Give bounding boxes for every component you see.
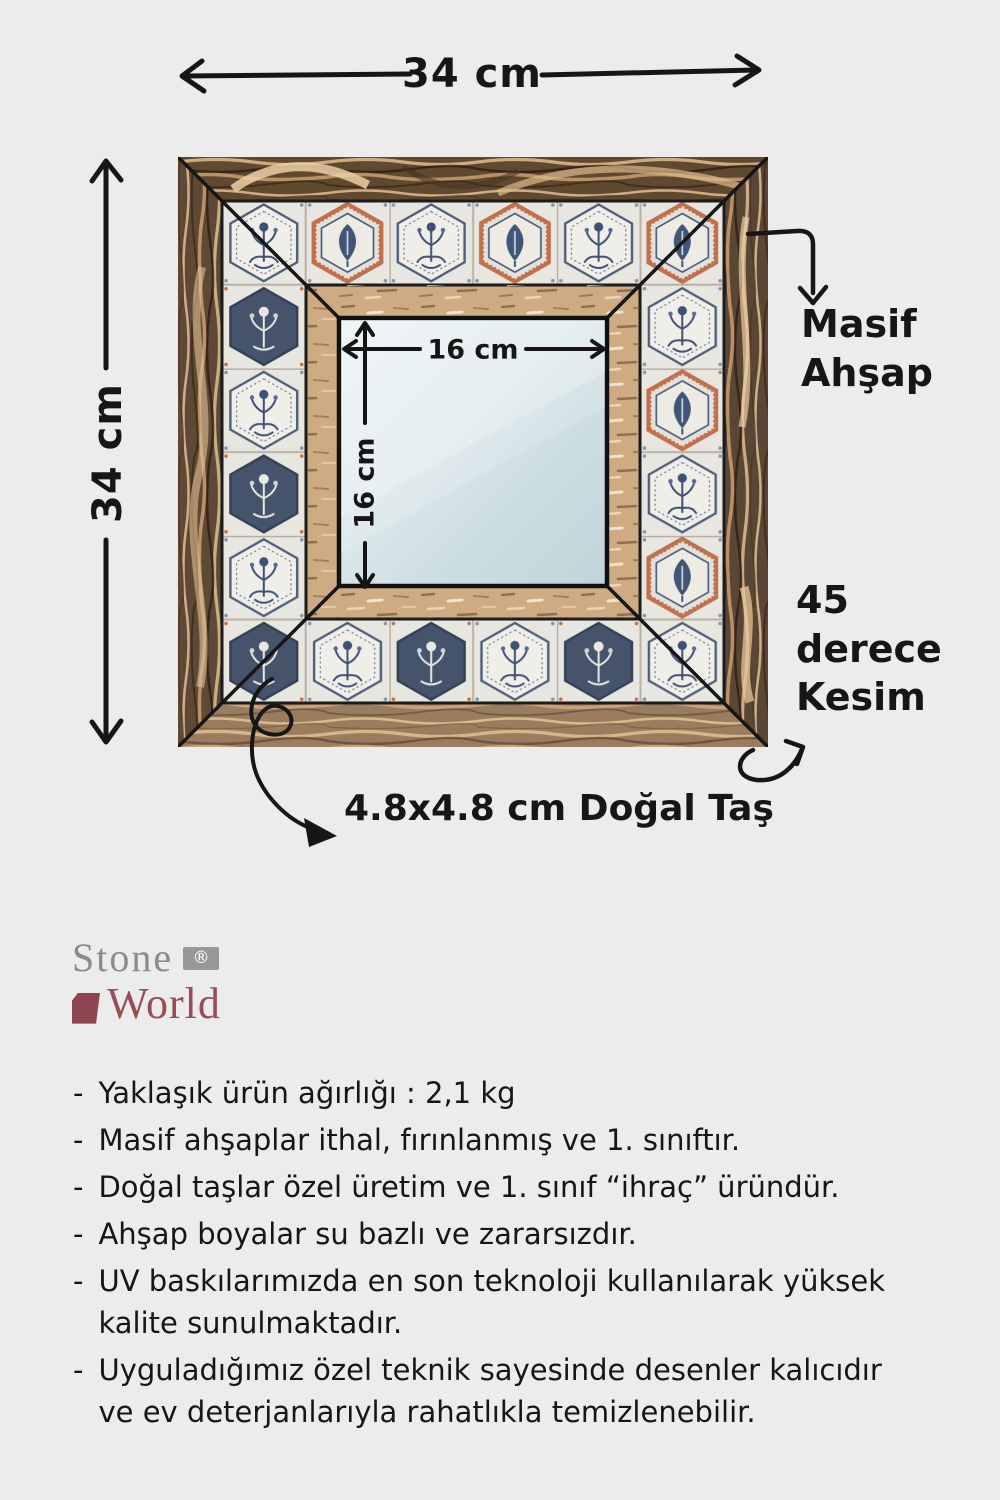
bullet-dash: - [73,1166,83,1208]
registered-trademark-icon: ® [183,947,219,970]
miter-callout-arrow [740,741,803,780]
bullet-dash: - [73,1213,83,1255]
stone-callout-arrow [251,679,337,847]
logo-word-stone: Stone [72,938,173,978]
bullet-dash: - [73,1349,83,1391]
feature-item: - Ahşap boyalar su bazlı ve zararsızdır. [73,1213,1000,1255]
product-infographic: 16 cm 16 cm [0,0,1000,1500]
wood-callout-arrow [748,231,826,303]
brand-logo: Stone ® World [72,938,221,1024]
logo-mark-icon [72,993,100,1024]
annotation-arrows [0,0,1000,900]
feature-item: - Doğal taşlar özel üretim ve 1. sınıf “… [73,1166,1000,1208]
feature-item: - Uyguladığımız özel teknik sayesinde de… [73,1349,1000,1433]
feature-list: - Yaklaşık ürün ağırlığı : 2,1 kg - Masi… [73,1072,1000,1438]
solid-wood-callout: Masif Ahşap [801,300,933,397]
feature-item: - UV baskılarımızda en son teknoloji kul… [73,1260,1000,1344]
feature-item: - Masif ahşaplar ithal, fırınlanmış ve 1… [73,1119,1000,1161]
feature-item: - Yaklaşık ürün ağırlığı : 2,1 kg [73,1072,1000,1114]
bullet-dash: - [73,1119,83,1161]
bullet-dash: - [73,1260,83,1302]
bullet-dash: - [73,1072,83,1114]
natural-stone-callout: 4.8x4.8 cm Doğal Taş [344,788,774,829]
miter-cut-callout: 45 derece Kesim [796,576,942,722]
height-dimension-label: 34 cm [85,383,131,523]
logo-word-world: World [107,984,221,1024]
width-dimension-label: 34 cm [402,51,542,97]
